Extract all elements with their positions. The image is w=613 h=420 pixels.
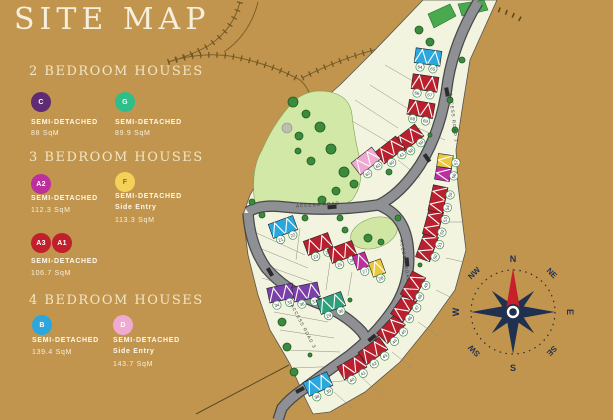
compass-label-ne: NE [545,266,560,281]
tree-icon [278,318,286,326]
tree-icon [418,263,422,267]
tree-icon [428,133,432,137]
house-type-badge-a3: A3 [31,233,51,253]
section-heading-3bed: 3 BEDROOM HOUSES [29,150,204,165]
tree-icon [326,144,336,154]
section-heading-4bed: 4 BEDROOM HOUSES [29,293,204,308]
compass-label-nw: NW [466,265,482,281]
tree-icon [364,234,372,242]
tree-icon [339,167,349,177]
site-map-page: 6465666768695859606162632122232425262728… [0,0,613,420]
tree-icon [415,26,423,34]
boundary-line [196,365,289,414]
house-type-badge-a1: A1 [52,233,72,253]
tree-icon [307,157,315,165]
compass-rose: N S E W NE NW SE SW [451,254,575,373]
tree-icon [332,187,340,195]
compass-north-needle [506,268,520,310]
site-plan: 6465666768695859606162632122232425262728… [0,0,613,420]
compass-label-s: S [510,363,516,373]
house-type-badge-d: D [113,315,133,335]
house-type-badge-b: B [32,315,52,335]
compass-label-se: SE [544,344,558,358]
compass-label-e: E [565,309,575,315]
compass-label-w: W [451,307,461,316]
pond [282,123,292,133]
tree-icon [459,57,465,63]
tree-icon [302,215,308,221]
house-type-badge-g: G [115,92,135,112]
tree-icon [395,215,401,221]
tree-icon [295,132,303,140]
tree-icon [386,169,392,175]
tree-icon [288,97,298,107]
tree-icon [348,298,352,302]
section-heading-2bed: 2 BEDROOM HOUSES [29,64,204,79]
tree-icon [426,38,434,46]
house-type-badge-c: C [31,92,51,112]
compass-label-sw: SW [466,343,482,359]
house-type-badge-a2: A2 [31,174,51,194]
tree-icon [249,199,255,205]
park-area [254,91,361,210]
tree-icon [290,368,298,376]
page-title: SITE MAP [14,2,210,37]
tree-icon [308,353,312,357]
tree-icon [342,227,348,233]
tree-icon [302,110,310,118]
tree-icon [315,122,325,132]
tree-icon [259,212,265,218]
house-type-badge-f: F [115,172,135,192]
compass-label-n: N [510,254,517,264]
tree-icon [350,180,358,188]
tree-icon [378,239,384,245]
tree-icon [337,215,343,221]
tree-icon [295,148,301,154]
tree-icon [283,343,291,351]
